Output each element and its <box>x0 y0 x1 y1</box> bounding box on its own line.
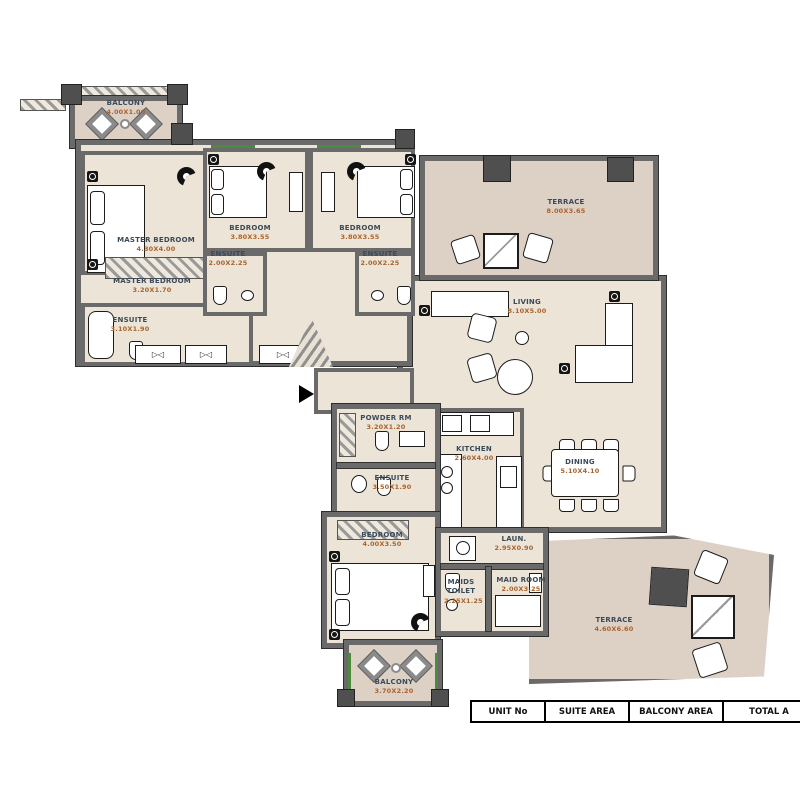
railing-accent <box>435 653 438 695</box>
wardrobe-hatch <box>339 413 356 457</box>
partition-wall <box>486 567 491 631</box>
planter-icon <box>130 108 161 139</box>
pillow-icon <box>400 169 413 190</box>
window-accent <box>211 145 255 148</box>
dining-chair-icon <box>603 499 619 512</box>
appliance-icon <box>442 415 462 432</box>
door-swing-icon <box>177 167 196 186</box>
toilet-icon <box>375 431 389 451</box>
balcony-pillar <box>338 690 354 706</box>
toilet-icon <box>445 573 460 593</box>
sink-icon <box>446 599 458 611</box>
spotlight-icon <box>609 291 620 302</box>
desk-icon <box>321 172 335 212</box>
table-header-unit-no: UNIT No <box>472 702 546 721</box>
spotlight-icon <box>329 629 340 640</box>
entrance-arrow-icon <box>299 385 314 403</box>
areas-table: UNIT No SUITE AREA BALCONY AREA TOTAL A <box>470 700 800 723</box>
vanity-icon <box>399 431 425 447</box>
appliance-icon <box>470 415 490 432</box>
room-bedroom-4 <box>322 512 440 648</box>
toilet-icon <box>397 286 411 305</box>
washer-drum-icon <box>456 541 470 555</box>
pillow-icon <box>211 194 224 215</box>
partition-wall <box>441 564 543 569</box>
railing-accent <box>348 653 351 695</box>
sink-icon <box>351 475 367 493</box>
spotlight-icon <box>405 154 416 165</box>
room-ensuite-3 <box>355 252 415 316</box>
room-powder-cluster <box>332 404 440 524</box>
dining-chair-icon <box>623 466 636 482</box>
spotlight-icon <box>87 259 98 270</box>
terrace-mirror-icon <box>691 595 735 639</box>
sink-icon <box>241 290 254 301</box>
nightstand-icon <box>423 565 435 597</box>
maid-bed-icon <box>495 595 541 627</box>
sofa-icon <box>431 291 509 317</box>
terrace-pillar <box>608 158 633 181</box>
planter-icon <box>86 108 117 139</box>
pillow-icon <box>211 169 224 190</box>
spotlight-icon <box>329 551 340 562</box>
wing-bedrooms: ▷◁ ▷◁ ▷◁ <box>76 140 412 366</box>
cooktop-icon <box>500 466 517 488</box>
terrace-table-icon <box>650 568 688 606</box>
pillow-icon <box>335 568 350 595</box>
wall-pillar <box>396 130 414 148</box>
wall-pillar <box>172 124 192 144</box>
terrace-chair-icon <box>522 232 554 264</box>
room-balcony-bottom <box>344 640 442 706</box>
room-bedroom-2 <box>203 148 309 252</box>
room-ensuite-2 <box>203 252 267 316</box>
table-header-total-area: TOTAL A <box>724 702 800 721</box>
room-terrace-bottom <box>524 534 774 684</box>
spotlight-icon <box>559 363 570 374</box>
room-kitchen <box>430 408 524 537</box>
armchair-icon <box>466 312 498 344</box>
wardrobe-hatch <box>337 520 409 540</box>
partition-wall <box>337 463 435 468</box>
railing-hatch-left <box>20 99 66 111</box>
table-header-suite-area: SUITE AREA <box>546 702 630 721</box>
dining-table-icon <box>551 449 619 497</box>
planter-icon <box>358 650 389 681</box>
spotlight-icon <box>87 171 98 182</box>
wardrobe-icon: ▷◁ <box>135 345 181 364</box>
table-header-balcony-area: BALCONY AREA <box>630 702 724 721</box>
desk-icon <box>289 172 303 212</box>
toilet-icon <box>213 286 227 305</box>
terrace-chair-icon <box>693 549 729 585</box>
planter-icon <box>400 650 431 681</box>
pillow-icon <box>90 191 105 225</box>
bathtub-icon <box>88 311 114 359</box>
terrace-chair-icon <box>691 641 729 679</box>
round-table-icon <box>391 663 401 673</box>
balcony-pillar <box>62 85 81 104</box>
spotlight-icon <box>208 154 219 165</box>
room-service-block <box>436 528 548 636</box>
sink-icon <box>441 482 453 494</box>
shaft-hatch <box>289 317 333 367</box>
sofa-seat-icon <box>575 345 633 383</box>
balcony-pillar <box>168 85 187 104</box>
sink-icon <box>441 466 453 478</box>
armchair-icon <box>466 352 498 384</box>
toilet-icon <box>377 477 391 496</box>
side-table-icon <box>515 331 529 345</box>
terrace-chair-icon <box>450 234 482 266</box>
spotlight-icon <box>419 305 430 316</box>
dining-chair-icon <box>559 499 575 512</box>
wardrobe-icon: ▷◁ <box>185 345 227 364</box>
dining-chair-icon <box>581 499 597 512</box>
wardrobe-icon <box>529 573 542 593</box>
round-table-icon <box>120 119 130 129</box>
pillow-icon <box>400 194 413 215</box>
coffee-table-icon <box>497 359 533 395</box>
sink-icon <box>371 290 384 301</box>
pillow-icon <box>335 599 350 626</box>
window-accent <box>317 145 361 148</box>
terrace-pillar <box>484 156 510 181</box>
terrace-table-icon <box>483 233 519 269</box>
balcony-pillar <box>432 690 448 706</box>
floor-plan-canvas: BALCONY 4.00X1.00 <box>0 0 800 800</box>
room-bedroom-3 <box>309 148 415 252</box>
